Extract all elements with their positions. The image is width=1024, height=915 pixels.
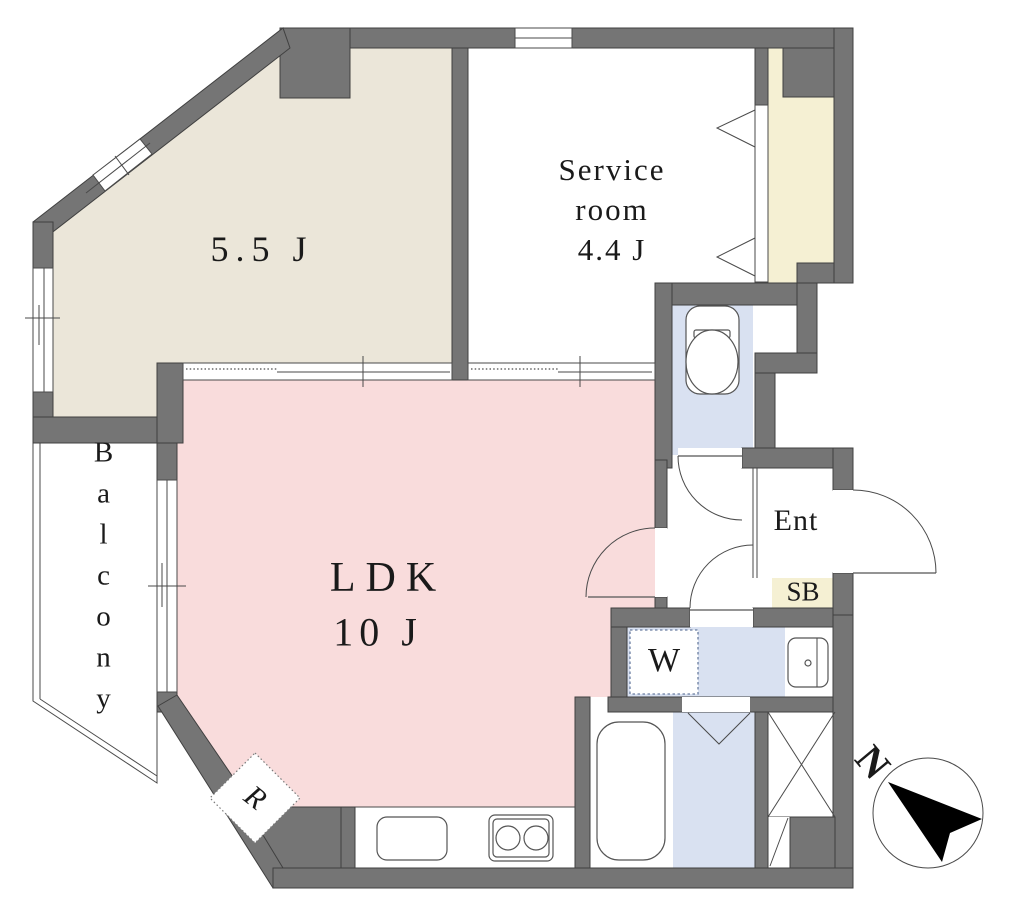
bath-door-opening	[682, 697, 750, 712]
wall-hall-left-upper	[655, 460, 667, 528]
wall-right-bottom	[833, 615, 853, 868]
service-room-name-line1: Service	[559, 150, 666, 190]
toilet-niche	[755, 305, 797, 353]
wall-entrance-right-bottom	[833, 573, 853, 615]
wall-entrance-right-top	[833, 448, 853, 490]
wall-toilet-top	[655, 283, 797, 305]
stove-burner-left	[496, 826, 520, 850]
wall-washroom-top-left	[611, 608, 690, 627]
wall-step-horizontal	[755, 353, 817, 373]
wall-mid-vertical	[452, 48, 468, 380]
compass-needle	[888, 782, 982, 862]
bathtub	[597, 722, 665, 860]
wall-ldk-left-upper	[157, 443, 177, 480]
entrance-door-opening	[833, 490, 853, 573]
shoe-box-label: SB	[786, 577, 819, 608]
wall-kitchen-left	[341, 807, 355, 868]
compass	[873, 758, 983, 868]
wall-toilet-left	[655, 283, 672, 468]
entrance-label: Ent	[774, 504, 819, 538]
service-room-label: Service room 4.4 J	[559, 150, 666, 270]
wall-left-upper	[33, 222, 53, 268]
wall-closet-right-fill	[783, 48, 834, 97]
washroom-door-opening	[690, 608, 753, 627]
washer-label: W	[648, 642, 680, 680]
closet-door-track	[755, 105, 768, 282]
wall-partition-stub	[157, 363, 183, 443]
kitchen-sink	[377, 817, 447, 860]
wall-bath-right	[755, 712, 768, 868]
balcony-label: Balcony	[87, 437, 120, 724]
wall-right-top	[834, 28, 853, 283]
vanity-faucet	[805, 660, 811, 666]
bedroom-size-label: 5.5 J	[210, 228, 313, 270]
wall-step-vertical	[755, 373, 775, 448]
wall-kitchen-right	[575, 697, 590, 868]
ldk-door-opening	[655, 528, 667, 597]
service-room-name-line2: room	[559, 190, 666, 230]
stove-burner-right	[524, 826, 548, 850]
wall-closet-stub-top	[755, 48, 768, 105]
wall-notch	[280, 28, 350, 98]
wall-bottom	[273, 868, 853, 888]
wall-shaft-below	[790, 817, 835, 868]
window-left	[33, 268, 53, 392]
toilet-door-opening	[678, 448, 742, 468]
ldk-size-label: 10 J	[333, 609, 423, 656]
bath-floor	[673, 712, 755, 868]
entrance-door-arc	[853, 490, 936, 573]
floor-plan: 5.5 J Service room 4.4 J LDK 10 J Balcon…	[0, 0, 1024, 915]
ldk-name-label: LDK	[330, 554, 446, 602]
service-room-size-label: 4.4 J	[559, 230, 666, 270]
wall-closet-step	[797, 263, 834, 283]
toilet-bowl	[686, 330, 738, 394]
hall-floor	[667, 468, 772, 608]
